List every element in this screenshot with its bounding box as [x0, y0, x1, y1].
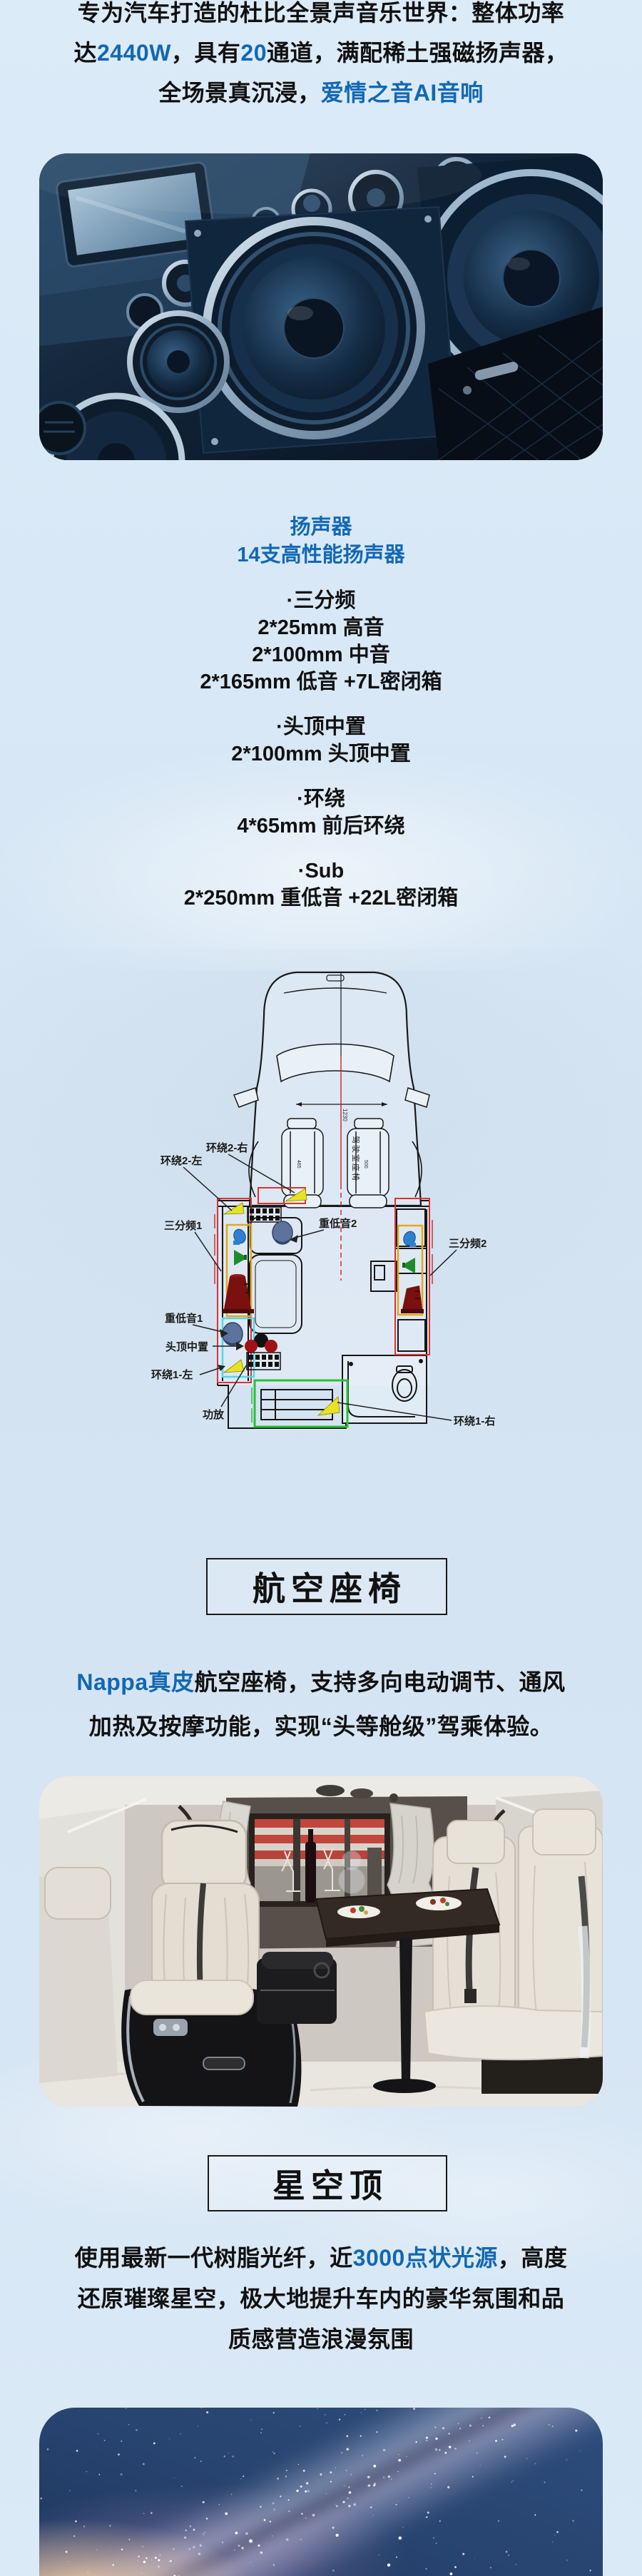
star — [68, 2561, 69, 2562]
star — [495, 2440, 497, 2442]
star — [434, 2473, 436, 2474]
star — [141, 2573, 142, 2574]
star — [222, 2542, 223, 2543]
label-surround2-left: 环绕2-左 — [160, 1154, 202, 1167]
speaker-layout-diagram: 1230 485 500 驾驶室座椅 — [121, 949, 521, 1462]
star — [66, 2551, 68, 2553]
star — [189, 2548, 190, 2550]
star — [264, 2519, 266, 2521]
star — [261, 2428, 263, 2430]
star — [312, 2514, 315, 2517]
star — [83, 2525, 85, 2527]
star — [300, 2425, 301, 2427]
star-field — [39, 2408, 603, 2576]
spec-group: ·环绕4*65mm 前后环绕 — [0, 785, 642, 840]
star — [469, 2425, 472, 2427]
star — [511, 2481, 513, 2483]
star — [426, 2437, 428, 2439]
star — [270, 2520, 272, 2522]
star — [96, 2549, 97, 2550]
star — [146, 2557, 148, 2560]
star — [370, 2507, 372, 2508]
star — [502, 2439, 504, 2440]
star — [174, 2478, 175, 2478]
star — [301, 2513, 302, 2515]
ceiling-vent — [316, 1785, 345, 1796]
star — [590, 2570, 591, 2571]
star — [136, 2429, 138, 2431]
star — [365, 2409, 365, 2410]
star — [128, 2539, 130, 2540]
text-line: 加热及按摩功能，实现“头等舱级”驾乘体验。 — [0, 1704, 642, 1748]
star — [184, 2536, 186, 2538]
star — [554, 2535, 555, 2535]
star — [477, 2453, 478, 2454]
text-segment: 爱情之音AI音响 — [321, 80, 484, 106]
star — [280, 2495, 281, 2497]
plastic-wrapped-belt — [583, 1926, 586, 2058]
star — [206, 2411, 208, 2413]
star — [481, 2418, 482, 2419]
cab-seats-vertical-text: 驾驶室座椅 — [351, 1136, 361, 1182]
star — [128, 2424, 129, 2425]
star — [415, 2441, 417, 2443]
star — [76, 2450, 78, 2452]
specs-title-line: 14支高性能扬声器 — [0, 541, 642, 569]
star — [353, 2503, 356, 2506]
text-segment: ，高度 — [498, 2245, 568, 2271]
text-segment: ，具有 — [171, 40, 241, 66]
text-line: 还原璀璨星空，极大地提升车内的豪华氛围和品 — [0, 2279, 642, 2319]
star — [234, 2550, 235, 2550]
spec-group-label: ·头顶中置 — [0, 713, 642, 740]
label-threeway1: 三分频1 — [164, 1219, 202, 1232]
star — [151, 2512, 153, 2514]
star — [351, 2474, 352, 2475]
star — [377, 2431, 378, 2433]
star — [273, 2453, 275, 2454]
star — [516, 2564, 517, 2565]
star — [413, 2408, 415, 2410]
text-line: 全场景真沉浸，爱情之音AI音响 — [0, 73, 642, 113]
text-segment: 质感营造浪漫氛围 — [228, 2326, 414, 2352]
star — [431, 2483, 432, 2485]
star — [250, 2562, 250, 2562]
spec-group-label: ·Sub — [0, 857, 642, 885]
star — [219, 2504, 220, 2505]
star — [198, 2426, 198, 2427]
star — [203, 2501, 205, 2503]
star — [169, 2438, 170, 2439]
star — [258, 2545, 260, 2547]
star — [112, 2564, 114, 2566]
star — [447, 2486, 449, 2488]
label-amplifier: 功放 — [203, 1408, 225, 1421]
star — [273, 2412, 275, 2413]
label-surround1-right: 环绕1-右 — [454, 1415, 495, 1427]
text-segment: 通道，满配稀土强磁扬声器， — [267, 40, 569, 66]
star — [332, 2570, 335, 2572]
rv-interior-seats-photo — [39, 1776, 603, 2107]
star — [449, 2445, 451, 2448]
text-line: 质感营造浪漫氛围 — [0, 2319, 642, 2360]
star — [225, 2513, 228, 2515]
star — [552, 2542, 553, 2542]
star — [462, 2553, 464, 2555]
star — [398, 2459, 401, 2462]
star — [240, 2478, 241, 2479]
star — [41, 2498, 42, 2499]
star — [436, 2542, 437, 2544]
star — [435, 2438, 437, 2440]
star — [303, 2470, 305, 2472]
star — [435, 2448, 437, 2450]
star — [575, 2430, 577, 2432]
star — [368, 2484, 370, 2486]
star — [69, 2490, 71, 2492]
star — [362, 2455, 363, 2456]
star — [194, 2457, 195, 2458]
star — [198, 2552, 200, 2555]
star — [361, 2412, 362, 2413]
star — [200, 2545, 202, 2547]
star — [272, 2451, 273, 2453]
star — [288, 2510, 290, 2512]
star — [398, 2454, 399, 2455]
star — [552, 2425, 554, 2427]
star — [348, 2505, 350, 2507]
star — [201, 2408, 203, 2408]
star — [47, 2448, 49, 2450]
star — [173, 2548, 174, 2550]
star — [231, 2493, 233, 2495]
text-segment: 20 — [240, 40, 267, 66]
star — [469, 2440, 470, 2442]
star — [474, 2558, 475, 2559]
star — [346, 2470, 347, 2471]
star — [396, 2557, 397, 2558]
label-surround1-left: 环绕1-左 — [151, 1368, 193, 1381]
text-segment: 2440W — [97, 40, 171, 66]
star — [448, 2433, 450, 2435]
section-title-starlight-roof: 星空顶 — [208, 2155, 447, 2211]
star — [153, 2443, 156, 2445]
star — [326, 2493, 327, 2494]
star — [344, 2485, 345, 2486]
star — [398, 2536, 402, 2540]
star — [498, 2520, 499, 2522]
seat-dim-right: 500 — [363, 1160, 368, 1169]
text-segment: 达 — [73, 40, 97, 66]
section-title-text: 航空座椅 — [247, 1563, 407, 1610]
text-line: 使用最新一代树脂光纤，近3000点状光源，高度 — [0, 2238, 642, 2279]
star — [203, 2533, 205, 2535]
star — [273, 2565, 275, 2566]
star — [347, 2498, 349, 2499]
star — [544, 2482, 545, 2483]
star — [383, 2449, 385, 2451]
left-small-speaker — [130, 313, 227, 410]
seat-dim-left: 485 — [296, 1160, 301, 1169]
spec-group: ·Sub2*250mm 重低音 +22L密闭箱 — [0, 857, 642, 912]
speakers-illustration — [39, 153, 603, 460]
star — [373, 2465, 376, 2468]
star — [508, 2555, 509, 2556]
star — [511, 2425, 514, 2427]
star — [142, 2546, 143, 2547]
star — [75, 2520, 77, 2522]
star — [272, 2535, 272, 2536]
star — [205, 2532, 206, 2533]
star — [277, 2478, 279, 2480]
star — [305, 2490, 307, 2493]
star — [442, 2427, 444, 2429]
star — [300, 2485, 302, 2488]
star — [330, 2471, 332, 2473]
star — [387, 2564, 390, 2567]
star — [181, 2485, 183, 2487]
star — [580, 2450, 581, 2451]
speaker-specs: 扬声器 14支高性能扬声器 ·三分频2*25mm 高音2*100mm 中音2*1… — [0, 514, 642, 912]
star — [168, 2561, 170, 2562]
star — [305, 2518, 306, 2518]
star — [566, 2459, 567, 2460]
specs-groups: ·三分频2*25mm 高音2*100mm 中音2*165mm 低音 +7L密闭箱… — [0, 587, 642, 912]
star — [143, 2560, 146, 2563]
star — [459, 2428, 461, 2429]
text-segment: Nappa真皮 — [76, 1669, 194, 1695]
star — [479, 2465, 480, 2465]
star — [388, 2475, 390, 2478]
star — [98, 2433, 99, 2435]
spec-line: 4*65mm 前后环绕 — [0, 813, 642, 840]
star — [104, 2440, 106, 2441]
star — [118, 2453, 120, 2455]
star — [170, 2560, 172, 2562]
star — [260, 2506, 262, 2508]
star — [121, 2473, 123, 2475]
star — [556, 2531, 559, 2533]
star — [489, 2416, 491, 2418]
star — [320, 2473, 322, 2475]
star — [180, 2433, 181, 2434]
star — [360, 2435, 362, 2437]
star — [288, 2499, 290, 2500]
promo-page: 专为汽车打造的杜比全景声音乐世界：整体功率达2440W，具有20通道，满配稀土强… — [0, 0, 642, 2576]
center-woofer — [185, 207, 457, 453]
star — [572, 2520, 574, 2522]
star — [512, 2480, 514, 2482]
star — [260, 2432, 262, 2433]
star — [346, 2448, 349, 2451]
star — [193, 2546, 195, 2548]
star — [435, 2427, 437, 2428]
star — [454, 2448, 456, 2449]
spec-group-label: ·环绕 — [0, 785, 642, 813]
star — [300, 2539, 301, 2540]
star — [526, 2458, 527, 2459]
text-line: 达2440W，具有20通道，满配稀土强磁扬声器， — [0, 33, 642, 73]
star — [346, 2435, 348, 2437]
star — [373, 2484, 375, 2486]
star — [433, 2537, 434, 2539]
star — [121, 2440, 122, 2442]
star — [86, 2471, 87, 2473]
star — [126, 2408, 127, 2409]
star — [135, 2490, 136, 2491]
text-segment: 专为汽车打造的杜比全景声音乐世界：整体功率 — [78, 0, 565, 26]
star — [339, 2418, 340, 2420]
specs-title-line: 扬声器 — [0, 514, 642, 541]
star — [228, 2453, 229, 2453]
star — [326, 2423, 327, 2424]
star — [504, 2455, 506, 2458]
star — [397, 2471, 398, 2472]
star — [272, 2502, 275, 2504]
star — [260, 2552, 263, 2555]
star — [445, 2452, 447, 2454]
star — [403, 2527, 404, 2527]
starlight-paragraph: 使用最新一代树脂光纤，近3000点状光源，高度还原璀璨星空，极大地提升车内的豪华… — [0, 2238, 642, 2360]
milky-way-photo — [39, 2408, 603, 2576]
star — [490, 2567, 491, 2568]
text-segment: 全场景真沉浸， — [158, 80, 321, 106]
star — [249, 2540, 253, 2543]
star — [155, 2557, 157, 2559]
specs-title: 扬声器 14支高性能扬声器 — [0, 514, 642, 569]
star — [335, 2504, 336, 2505]
star — [332, 2527, 335, 2529]
spec-group-label: ·三分频 — [0, 587, 642, 614]
spec-line: 2*250mm 重低音 +22L密闭箱 — [0, 885, 642, 912]
spec-group: ·三分频2*25mm 高音2*100mm 中音2*165mm 低音 +7L密闭箱 — [0, 587, 642, 696]
right-bench-seats — [424, 1809, 603, 2094]
star — [138, 2555, 140, 2557]
vehicle-cab: 1230 485 500 驾驶室座椅 — [234, 972, 429, 1208]
star — [398, 2500, 399, 2501]
text-line: Nappa真皮航空座椅，支持多向电动调节、通风 — [0, 1660, 642, 1704]
star — [391, 2479, 392, 2480]
star — [427, 2512, 429, 2514]
label-threeway2: 三分频2 — [449, 1237, 486, 1250]
star — [206, 2518, 208, 2519]
star — [73, 2535, 75, 2537]
star — [581, 2490, 582, 2491]
star — [151, 2560, 152, 2560]
star — [426, 2568, 427, 2570]
star — [330, 2481, 332, 2483]
star — [581, 2410, 581, 2410]
car-audio-speakers-photo — [39, 153, 603, 460]
star — [458, 2423, 459, 2424]
star — [235, 2532, 238, 2535]
star — [286, 2538, 289, 2541]
star — [349, 2491, 352, 2494]
star — [317, 2408, 317, 2409]
intro-paragraph: 专为汽车打造的杜比全景声音乐世界：整体功率达2440W，具有20通道，满配稀土强… — [0, 0, 642, 113]
star — [158, 2566, 159, 2567]
star — [506, 2551, 508, 2553]
spec-group: ·头顶中置2*100mm 头顶中置 — [0, 713, 642, 768]
star — [379, 2555, 379, 2555]
star — [449, 2572, 452, 2575]
spec-line: 2*165mm 低音 +7L密闭箱 — [0, 668, 642, 696]
label-overhead-center: 头顶中置 — [165, 1340, 208, 1353]
star — [367, 2476, 370, 2479]
star — [143, 2513, 145, 2515]
star — [383, 2477, 384, 2478]
spec-line: 2*25mm 高音 — [0, 614, 642, 641]
star — [298, 2464, 299, 2465]
star — [245, 2532, 248, 2535]
star — [143, 2463, 145, 2465]
star — [348, 2486, 350, 2488]
star — [377, 2410, 378, 2411]
star — [224, 2455, 226, 2458]
star — [190, 2525, 192, 2527]
star — [341, 2452, 342, 2453]
star — [200, 2460, 202, 2462]
interior-illustration — [39, 1776, 603, 2107]
window — [249, 1813, 390, 1907]
star — [109, 2525, 111, 2527]
section-title-text: 星空顶 — [267, 2160, 388, 2207]
star — [566, 2560, 567, 2560]
star — [306, 2482, 308, 2484]
star — [483, 2425, 484, 2427]
star — [513, 2423, 516, 2426]
star — [273, 2509, 275, 2511]
label-subwoofer1: 重低音1 — [165, 1312, 203, 1325]
star — [243, 2475, 244, 2477]
star — [285, 2475, 287, 2478]
star — [238, 2545, 240, 2547]
star — [439, 2520, 441, 2522]
star — [472, 2476, 474, 2478]
star — [344, 2414, 345, 2415]
star — [373, 2515, 374, 2515]
star — [99, 2474, 101, 2475]
star — [325, 2414, 326, 2415]
star — [296, 2490, 298, 2492]
star — [534, 2514, 536, 2515]
star — [87, 2572, 88, 2573]
star — [137, 2560, 138, 2561]
star — [232, 2455, 234, 2458]
star — [406, 2456, 407, 2457]
star — [121, 2548, 123, 2550]
star — [426, 2440, 427, 2441]
dimension-value: 1230 — [342, 1109, 348, 1121]
star — [185, 2530, 186, 2531]
spec-line: 2*100mm 中音 — [0, 641, 642, 668]
seats-paragraph: Nappa真皮航空座椅，支持多向电动调节、通风加热及按摩功能，实现“头等舱级”驾… — [0, 1660, 642, 1748]
text-line: 专为汽车打造的杜比全景声音乐世界：整体功率 — [0, 0, 642, 33]
star — [286, 2470, 287, 2471]
star — [158, 2559, 160, 2561]
star — [408, 2497, 409, 2498]
label-subwoofer2: 重低音2 — [319, 1217, 357, 1230]
star — [307, 2490, 310, 2492]
star — [342, 2501, 345, 2503]
star — [250, 2420, 251, 2420]
star — [241, 2547, 243, 2549]
star — [336, 2505, 338, 2508]
star — [159, 2555, 160, 2556]
label-surround2-right: 环绕2-右 — [206, 1141, 248, 1154]
text-segment: 3000点状光源 — [353, 2245, 498, 2271]
star — [335, 2534, 338, 2537]
